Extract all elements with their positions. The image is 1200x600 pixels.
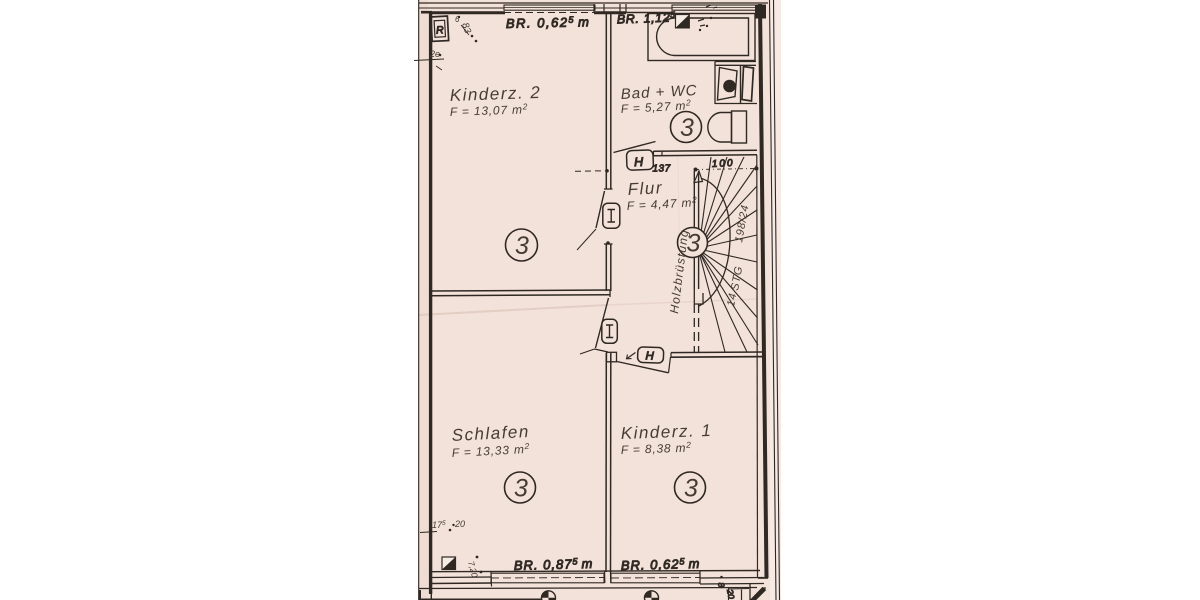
svg-text:H: H [634,155,644,169]
svg-text:F = 8,38 m2: F = 8,38 m2 [621,440,692,457]
svg-text:20: 20 [725,588,737,600]
svg-text:14: 14 [725,292,739,308]
svg-text:100: 100 [712,158,735,170]
svg-text:Flur: Flur [627,178,663,199]
svg-text:BR. 1,125: BR. 1,125 [617,9,676,26]
svg-text:BR. 0,875m: BR. 0,875m [514,556,594,573]
svg-text:2e: 2e [429,49,440,59]
svg-text:3: 3 [514,475,528,503]
svg-text:F = 13,07 m2: F = 13,07 m2 [450,101,529,119]
svg-text:3: 3 [515,232,529,260]
svg-text:3: 3 [684,475,698,503]
svg-text:3: 3 [680,114,694,142]
svg-text:H: H [645,350,654,362]
svg-text:R: R [436,24,445,36]
svg-text:20: 20 [454,519,465,529]
svg-text:137: 137 [653,164,671,175]
svg-text:Kinderz. 1: Kinderz. 1 [620,421,712,443]
svg-text:BR. 0,625m: BR. 0,625m [506,14,591,31]
svg-text:BR. 0,625m: BR. 0,625m [621,556,701,573]
